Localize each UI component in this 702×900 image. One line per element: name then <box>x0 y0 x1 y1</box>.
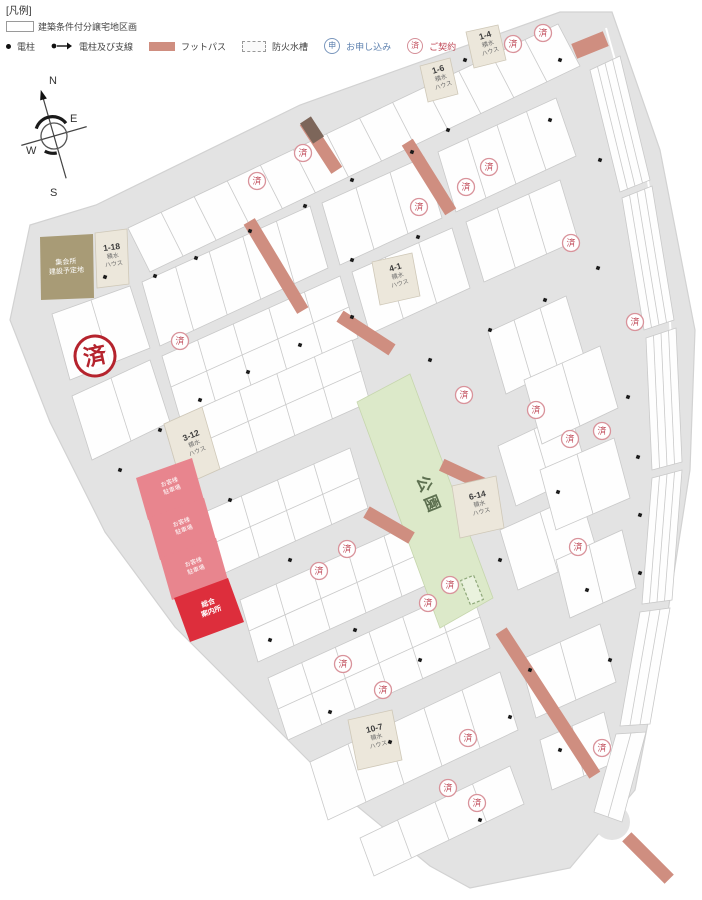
sold-marker: 済 <box>562 431 579 448</box>
compass-w-label: W <box>26 145 37 157</box>
sold-marker: 済 <box>627 314 644 331</box>
svg-text:済: 済 <box>508 38 517 49</box>
svg-text:済: 済 <box>566 237 575 248</box>
svg-text:済: 済 <box>342 543 351 554</box>
compass-n-label: N <box>49 75 57 87</box>
sold-marker: 済 <box>456 387 473 404</box>
svg-text:済: 済 <box>314 565 323 576</box>
sold-marker: 済 <box>594 740 611 757</box>
sold-marker: 済 <box>460 730 477 747</box>
sold-marker: 済 <box>172 333 189 350</box>
sold-marker: 済 <box>249 173 266 190</box>
sold-marker: 済 <box>528 402 545 419</box>
svg-text:済: 済 <box>461 181 470 192</box>
sold-marker: 済 <box>375 682 392 699</box>
legend-row-symbols: 電柱 電柱及び支線 フットパス 防火水槽 申 お申し込み 済 ご契約 <box>6 38 456 54</box>
compass-e-label: E <box>70 113 77 125</box>
legend-application-label: お申し込み <box>346 40 391 53</box>
map-legend: [凡例] 建築条件付分譲宅地区画 電柱 電柱及び支線 フットパス 防火水槽 申 … <box>6 2 456 54</box>
svg-text:済: 済 <box>484 161 493 172</box>
svg-text:済: 済 <box>445 579 454 590</box>
sold-marker: 済 <box>295 145 312 162</box>
svg-text:済: 済 <box>175 335 184 346</box>
sold-marker: 済 <box>535 25 552 42</box>
sold-marker: 済 <box>469 795 486 812</box>
contract-mark-icon: 済 <box>407 38 423 54</box>
sold-marker: 済 <box>420 595 437 612</box>
sold-marker: 済 <box>458 179 475 196</box>
svg-text:済: 済 <box>597 425 606 436</box>
svg-text:済: 済 <box>472 797 481 808</box>
footpath-swatch-icon <box>149 42 175 51</box>
sold-marker: 済 <box>411 199 428 216</box>
utility-pole-icon <box>6 44 11 49</box>
legend-contract-label: ご契約 <box>429 40 456 53</box>
legend-title: [凡例] <box>6 2 456 17</box>
subdivision-map-page: 公園集会所建設予定地1-18積水ハウス1-6積水ハウス1-4積水ハウス4-1積水… <box>0 0 702 900</box>
svg-text:済: 済 <box>459 389 468 400</box>
sold-marker: 済 <box>335 656 352 673</box>
svg-text:済: 済 <box>463 732 472 743</box>
svg-text:済: 済 <box>630 316 639 327</box>
sold-marker: 済 <box>563 235 580 252</box>
sold-marker: 済 <box>442 577 459 594</box>
svg-text:済: 済 <box>443 782 452 793</box>
legend-pole-label: 電柱 <box>17 40 35 53</box>
svg-text:済: 済 <box>597 742 606 753</box>
compass-s-label: S <box>50 187 57 199</box>
legend-row-lot: 建築条件付分譲宅地区画 <box>6 20 456 33</box>
legend-wire-label: 電柱及び支線 <box>79 40 133 53</box>
legend-lot-label: 建築条件付分譲宅地区画 <box>38 20 137 33</box>
sold-marker: 済 <box>570 539 587 556</box>
application-mark-icon: 申 <box>324 38 340 54</box>
svg-text:済: 済 <box>423 597 432 608</box>
sold-marker: 済 <box>505 36 522 53</box>
svg-text:済: 済 <box>573 541 582 552</box>
compass-axes <box>8 80 99 187</box>
sold-marker: 済 <box>311 563 328 580</box>
sold-marker: 済 <box>440 780 457 797</box>
svg-text:済: 済 <box>414 201 423 212</box>
fire-tank-swatch-icon <box>242 41 266 52</box>
sold-marker: 済 <box>481 159 498 176</box>
footpath <box>622 832 674 884</box>
pole-wire-icon <box>51 41 73 51</box>
svg-text:済: 済 <box>298 147 307 158</box>
svg-text:済: 済 <box>531 404 540 415</box>
sold-marker: 済 <box>594 423 611 440</box>
sold-marker: 済 <box>339 541 356 558</box>
subdivision-map-canvas: 公園集会所建設予定地1-18積水ハウス1-6積水ハウス1-4積水ハウス4-1積水… <box>0 0 702 900</box>
svg-text:済: 済 <box>252 175 261 186</box>
svg-text:済: 済 <box>378 684 387 695</box>
compass-rose: N E W S <box>8 70 100 202</box>
svg-text:済: 済 <box>565 433 574 444</box>
legend-firetank-label: 防火水槽 <box>272 40 308 53</box>
lot-swatch-icon <box>6 21 34 32</box>
svg-text:済: 済 <box>538 27 547 38</box>
svg-text:済: 済 <box>338 658 347 669</box>
legend-footpath-label: フットパス <box>181 40 226 53</box>
